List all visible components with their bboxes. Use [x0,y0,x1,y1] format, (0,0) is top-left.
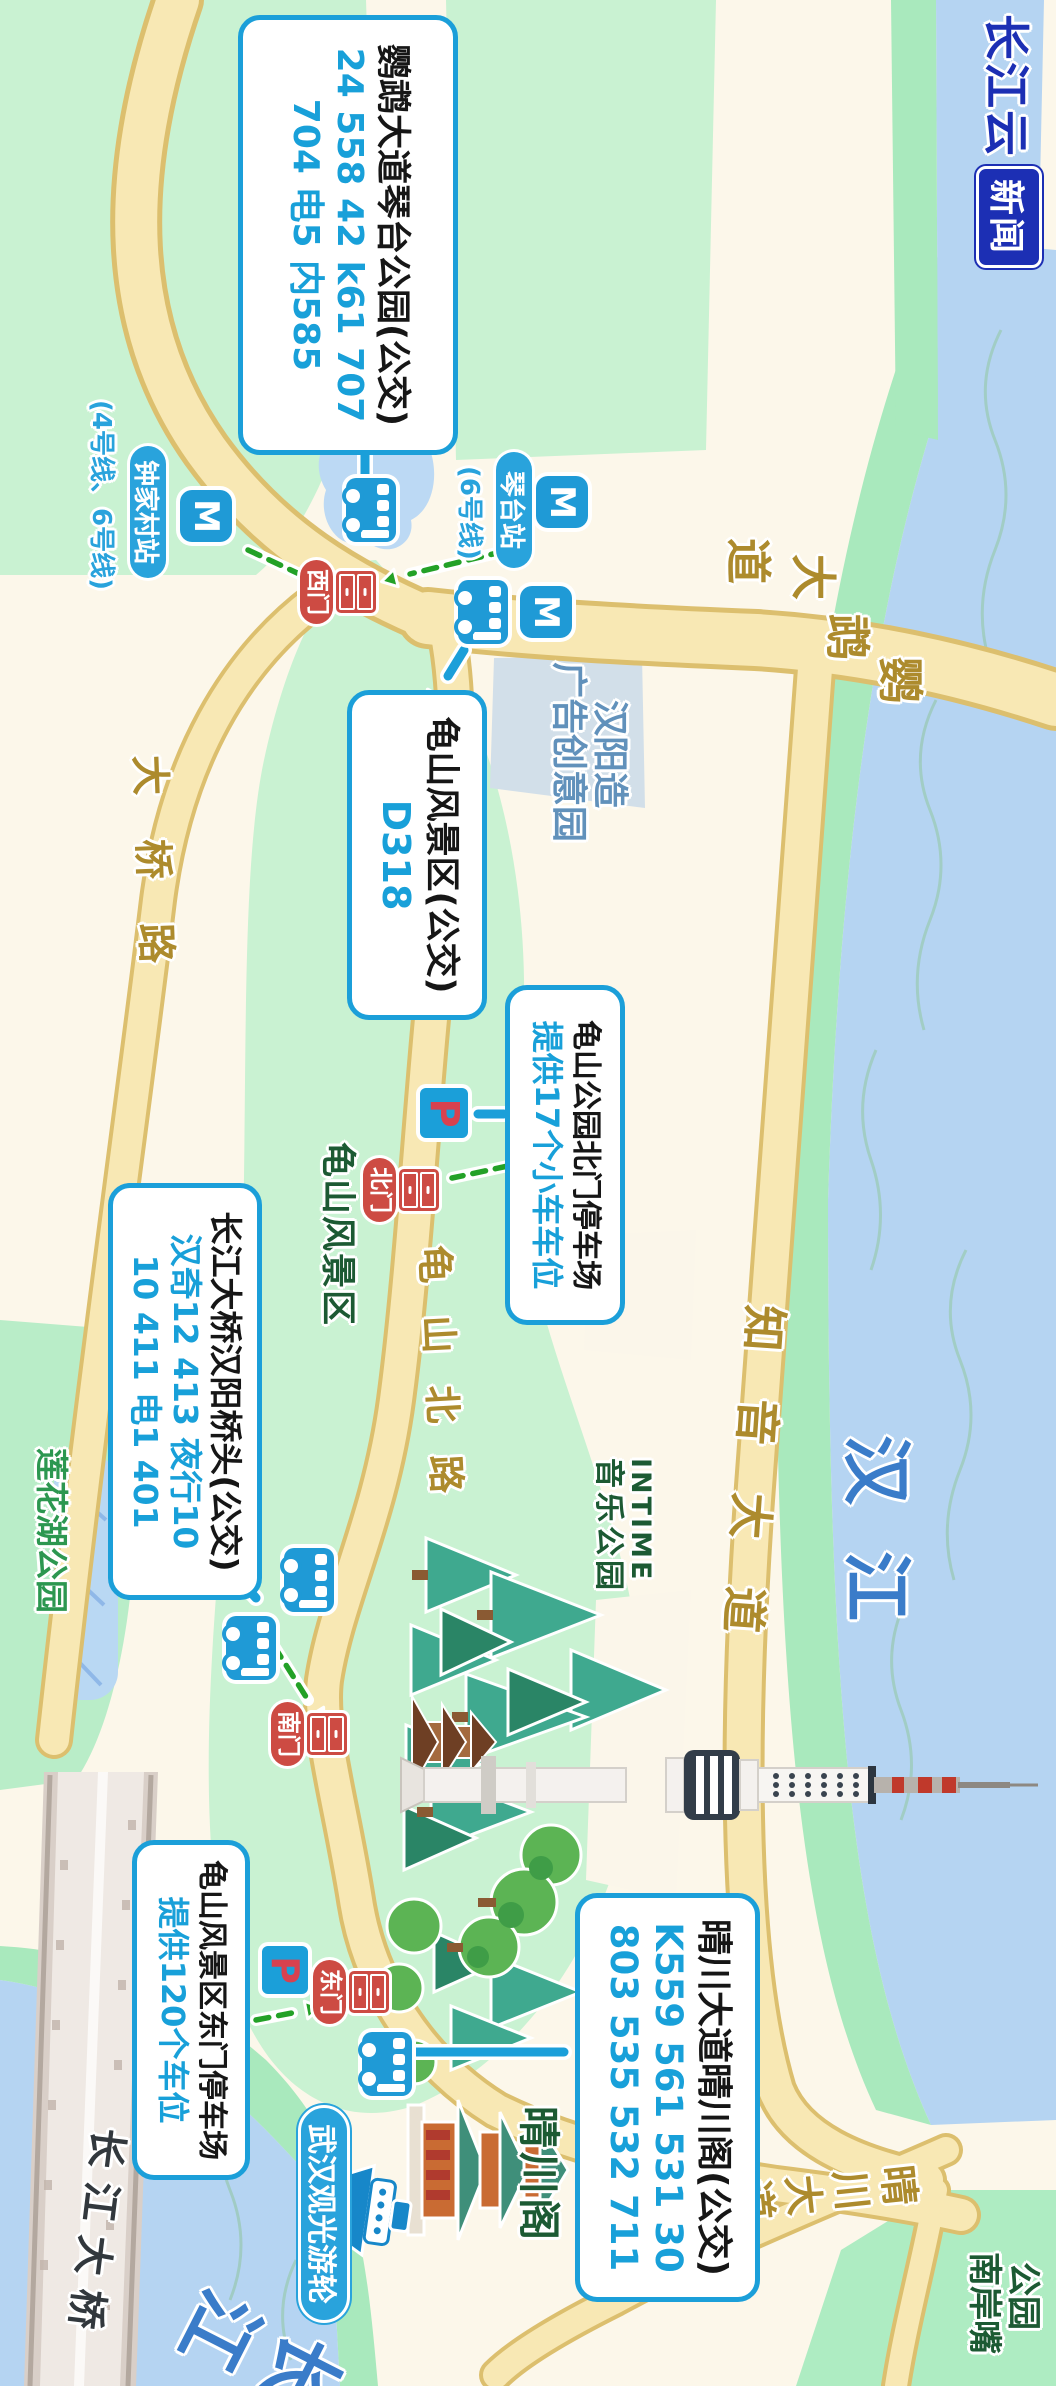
callout-east-parking: 龟山风景区东门停车场 提供120个车位 [132,1840,250,2180]
callout-north-parking: 龟山公园北门停车场 提供17个小车车位 [505,985,625,1325]
gate-label: 西门 [300,560,333,624]
road-label-yingwu-char: 鹉 [817,614,883,660]
callout-parking-capacity: 提供17个小车车位 [527,1021,566,1290]
gate-icon [307,1713,347,1755]
metro-logo-icon: M [180,490,232,542]
callout-bus-routes: 汉奇12 413 夜行10 [165,1234,205,1550]
bus-stop-icon [362,2032,412,2096]
logo-text: 长江云 [976,14,1042,158]
road-label-daqiao-road: 大桥路 [124,754,191,1008]
callout-bridgehead-bus: 长江大桥汉阳桥头(公交) 汉奇12 413 夜行10 10 411 电1 401 [108,1183,262,1600]
area-label-nananzui: 公园 南岸嘴 [964,2252,1042,2354]
gate-south: 南门 [271,1702,347,1766]
callout-bus-routes: D318 [372,800,418,911]
callout-parking-capacity: 提供120个车位 [153,1897,192,2124]
callout-bus-routes: 10 411 电1 401 [125,1254,165,1528]
logo-news-badge: 新闻 [976,166,1042,268]
bus-stop-icon [346,478,396,542]
area-label-intime-park: INTIME 音乐公园 [590,1458,656,1594]
callout-qingchuan-bus: 晴川大道晴川阁(公交) K559 561 531 30 803 535 532 … [575,1893,760,2302]
area-label-qingchuan-pavilion: 晴川阁 [511,2106,572,2244]
map-canvas: 长江云 新闻 鹦鹉大道琴台公园(公交) 24 558 42 k61 707 70… [0,0,1056,2386]
callout-title: 龟山公园北门停车场 [566,1020,603,1290]
station-zhongjiacun-pill: 钟家村站 [130,446,166,578]
gate-label: 南门 [271,1702,304,1766]
building-block-1 [586,1590,691,1900]
callout-title: 鹦鹉大道琴台公园(公交) [371,44,414,426]
callout-title: 龟山风景区东门停车场 [192,1860,229,2160]
callout-title: 长江大桥汉阳桥头(公交) [205,1211,245,1571]
road-label-yingwu-char: 大 [783,554,849,600]
parking-icon-east: P [262,1946,308,1994]
gate-icon [399,1169,439,1211]
gate-icon [336,571,376,613]
gate-label: 东门 [313,1960,346,2024]
bus-stop-icon [458,580,508,644]
area-label-lianhua-park: 莲花湖公园 [30,1448,78,1613]
callout-title: 龟山风景区(公交) [419,717,462,994]
gate-east: 东门 [313,1960,389,2024]
station-qintai-pill: 琴台站 [496,452,532,568]
gate-label: 北门 [363,1158,396,1222]
callout-bus-routes: K559 561 531 30 [646,1922,691,2273]
callout-guishan-bus: 龟山风景区(公交) D318 [347,690,487,1020]
metro-logo-icon: M [536,476,588,528]
callout-title: 晴川大道晴川阁(公交) [691,1919,735,2276]
parking-icon-north: P [420,1088,468,1138]
bus-stop-icon [284,1548,334,1612]
station-zhongjiacun-lines: (4号线、6号线) [85,400,122,590]
cruise-ship-label: 武汉观光游轮 [298,2105,350,2323]
park-area-north [446,0,716,460]
canal-bank [891,0,938,440]
callout-bus-routes: 704 电5 内585 [283,99,327,371]
water-label-hanjiang: 汉江 [831,1435,932,1667]
gate-icon [349,1971,389,2013]
callout-bus-routes: 803 535 532 711 [600,1924,645,2272]
callout-qintai-park-bus: 鹦鹉大道琴台公园(公交) 24 558 42 k61 707 704 电5 内5… [238,15,458,455]
bus-stop-icon [226,1616,276,1680]
metro-logo-icon: M [520,586,572,638]
gate-west: 西门 [300,560,376,624]
road-label-yingwu-char: 鹦 [870,657,936,703]
area-label-guishan-scenic: 龟山风景区 [315,1142,366,1327]
map-screenshot: 长江云 新闻 鹦鹉大道琴台公园(公交) 24 558 42 k61 707 70… [0,0,1056,2386]
callout-bus-routes: 24 558 42 k61 707 [327,48,371,423]
road-label-yingwu-char: 道 [718,538,784,584]
station-qintai-lines: (6号线) [453,466,490,560]
gate-north: 北门 [363,1158,439,1222]
area-label-hanyangzao: 汉阳造 广告创意园 [547,662,630,842]
changjiangyun-news-logo: 长江云 新闻 [976,14,1042,268]
